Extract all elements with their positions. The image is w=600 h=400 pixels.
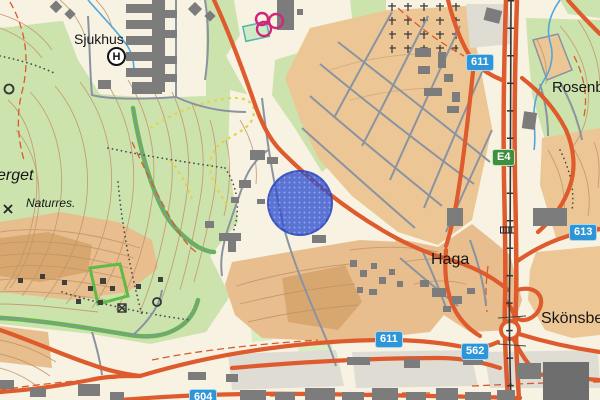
road-shield-611-south: 611 <box>375 331 403 348</box>
event-location-marker[interactable] <box>267 170 333 236</box>
road-shield-562: 562 <box>461 343 489 360</box>
road-shield-604: 604 <box>189 389 217 400</box>
road-shield-e4: E4 <box>492 149 515 166</box>
hospital-icon: H <box>107 47 126 66</box>
road-shield-611-north: 611 <box>466 54 494 71</box>
road-shield-613: 613 <box>569 224 597 241</box>
map-canvas[interactable]: Sjukhus H erget Naturres. Haga Rosenborg… <box>0 0 600 400</box>
